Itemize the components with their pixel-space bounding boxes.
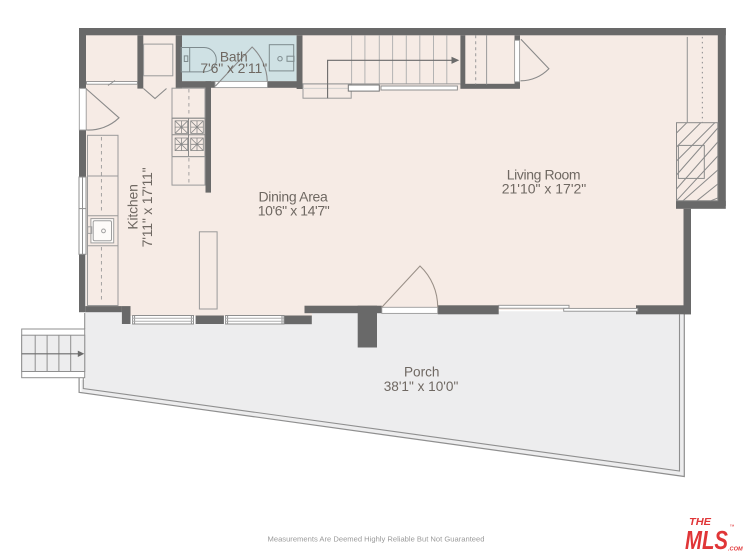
svg-text:7'6" x 2'11": 7'6" x 2'11" <box>200 60 267 76</box>
svg-text:10'6" x 14'7": 10'6" x 14'7" <box>258 203 330 219</box>
svg-text:.COM: .COM <box>728 547 743 553</box>
svg-text:Measurements Are Deemed Highly: Measurements Are Deemed Highly Reliable … <box>268 535 485 544</box>
svg-text:™: ™ <box>730 524 735 530</box>
svg-text:MLS: MLS <box>685 525 729 555</box>
svg-text:7'11" x 17'11": 7'11" x 17'11" <box>139 167 155 247</box>
svg-text:38'1" x 10'0": 38'1" x 10'0" <box>384 379 459 394</box>
svg-text:21'10" x 17'2": 21'10" x 17'2" <box>502 181 587 197</box>
svg-text:Porch: Porch <box>404 365 440 380</box>
